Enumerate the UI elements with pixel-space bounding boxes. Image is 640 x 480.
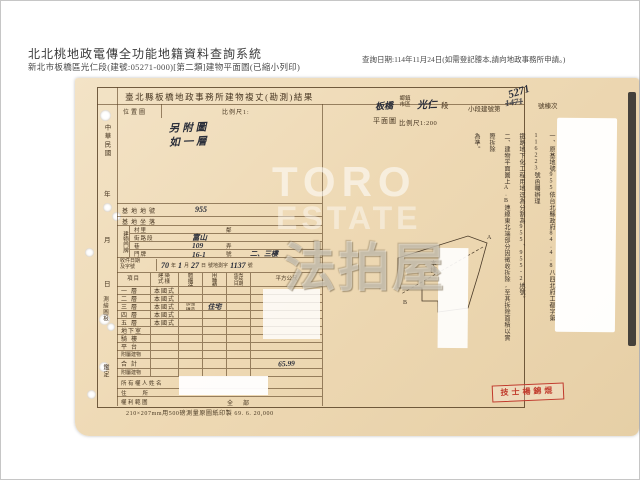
section-handwritten: 光仁 xyxy=(417,96,438,112)
location-scale-label: 比例尺1: xyxy=(162,104,250,118)
receipt-label: 收件日期 及字號 xyxy=(117,259,157,271)
survey-notes: 一、原基地號955依台北縣政府84.4.8八四北府工都字第116223號函囑辦理… xyxy=(496,133,558,347)
owner-name-redaction xyxy=(179,376,268,395)
point-b-label: B xyxy=(403,300,407,306)
query-date-note: 查詢日期:114年11月24日(如需登記謄本,請向地政事務所申請。) xyxy=(362,54,565,65)
plan-label: 平面圖 xyxy=(373,116,397,126)
floor-row: 平台 xyxy=(117,343,322,351)
lot-site-label: 基地坐落 xyxy=(117,217,158,226)
building-no-label: 小段建號第 xyxy=(468,103,501,113)
door-row-number: 門牌 16-1 號 二、三樓 xyxy=(130,250,322,258)
plan-divider xyxy=(322,104,323,406)
floor-table-header: 項目 建築式樣 主體構造 使用種類 建築完成日期 平方公尺 xyxy=(117,273,322,287)
form-title: 臺北縣板橋地政事務所建物複丈(勘測)結果 xyxy=(117,91,322,103)
lot-number-label: 基地地號 xyxy=(117,206,158,215)
technician-stamp: 技士楊錦焜 xyxy=(492,382,565,402)
screenshot-root: { "header": { "system_title": "北北桃地政電傳全功… xyxy=(0,0,640,480)
punch-hole xyxy=(85,248,94,257)
door-row-lane: 巷 109 弄 xyxy=(130,242,322,250)
redaction-patch xyxy=(263,289,320,339)
document-subtitle: 新北市板橋區光仁段(建號:05271-000)[第二類]建物平面圖(已縮小列印) xyxy=(28,61,300,73)
rights-value: 全部 xyxy=(227,398,259,407)
township-handwritten: 板橋 xyxy=(375,99,394,113)
lot-number-handwritten: 955 xyxy=(195,205,207,214)
location-map-label: 位置圖 xyxy=(117,104,162,118)
margin-month-label: 月 xyxy=(104,234,113,244)
note-line: 鐵路地下化工程用地逕為分割為955、955-2地號。 xyxy=(513,133,528,347)
building-no-suffix: 號棟次 xyxy=(538,100,558,110)
section-label: 段 xyxy=(441,100,449,111)
lot-number-row: 基地地號 955 xyxy=(117,204,322,217)
note-line: 為準。 xyxy=(468,133,483,347)
receipt-no-handwritten: 1137 xyxy=(230,261,246,270)
total-area-handwritten: 65.99 xyxy=(251,357,322,370)
lot-site-row: 基地坐落 xyxy=(117,217,322,226)
margin-survey-label: 測繪圖根 xyxy=(101,296,109,322)
building-label: 本棟 xyxy=(429,259,437,275)
rights-label: 權利範圍 xyxy=(117,398,149,406)
note-line: 一、原基地號955依台北縣政府84.4.8八四北府工都字第116223號函囑辦理 xyxy=(528,133,558,347)
margin-day-label: 日 xyxy=(104,278,113,288)
margin-year-label: 年 xyxy=(104,188,113,198)
owner-label: 所有權人姓名 xyxy=(117,379,163,387)
system-title: 北北桃地政電傳全功能地籍資料查詢系統 xyxy=(28,45,262,62)
punch-hole xyxy=(87,390,96,399)
location-note-handwritten: 另附圖 如一層 xyxy=(169,121,210,150)
scan-edge-shadow xyxy=(628,92,636,346)
survey-form-table: 位置圖 比例尺1: 另附圖 如一層 基地地號 955 基地坐落 建物門牌 村里 … xyxy=(117,104,322,406)
margin-verify-label: 鑑定 xyxy=(101,364,110,378)
total-row: 合計65.99 xyxy=(117,359,322,369)
plan-scale: 比例尺1:200 xyxy=(399,117,437,127)
location-map-box: 位置圖 比例尺1: 另附圖 如一層 xyxy=(117,104,322,204)
redaction-patch xyxy=(438,248,469,348)
print-spec-note: 210×207mm用500磅測量原圖紙印製 69. 6. 20,000 xyxy=(126,408,274,417)
door-plate-label: 建物門牌 xyxy=(117,226,130,257)
door-plate-block: 建物門牌 村里 鄰 街路段 富山 巷 109 弄 門牌 16-1 號 二、三樓 xyxy=(117,226,322,258)
margin-era-label: 中華民國 xyxy=(101,124,111,158)
address-label: 住所 xyxy=(117,389,164,397)
receipt-row: 收件日期 及字號 70年 1月 27日 號地測字 1137 號 xyxy=(117,258,322,273)
redaction-patch xyxy=(555,118,617,333)
door-row-village: 村里 鄰 xyxy=(130,226,322,234)
note-line: 二、建物平面圖上A.B連線東北端部分因徵收拆除,至其拆除面積以實際拆除 xyxy=(483,133,513,347)
rights-row: 權利範圍 全部 xyxy=(117,397,322,406)
township-label: 鄉鎮市區 xyxy=(399,97,411,109)
